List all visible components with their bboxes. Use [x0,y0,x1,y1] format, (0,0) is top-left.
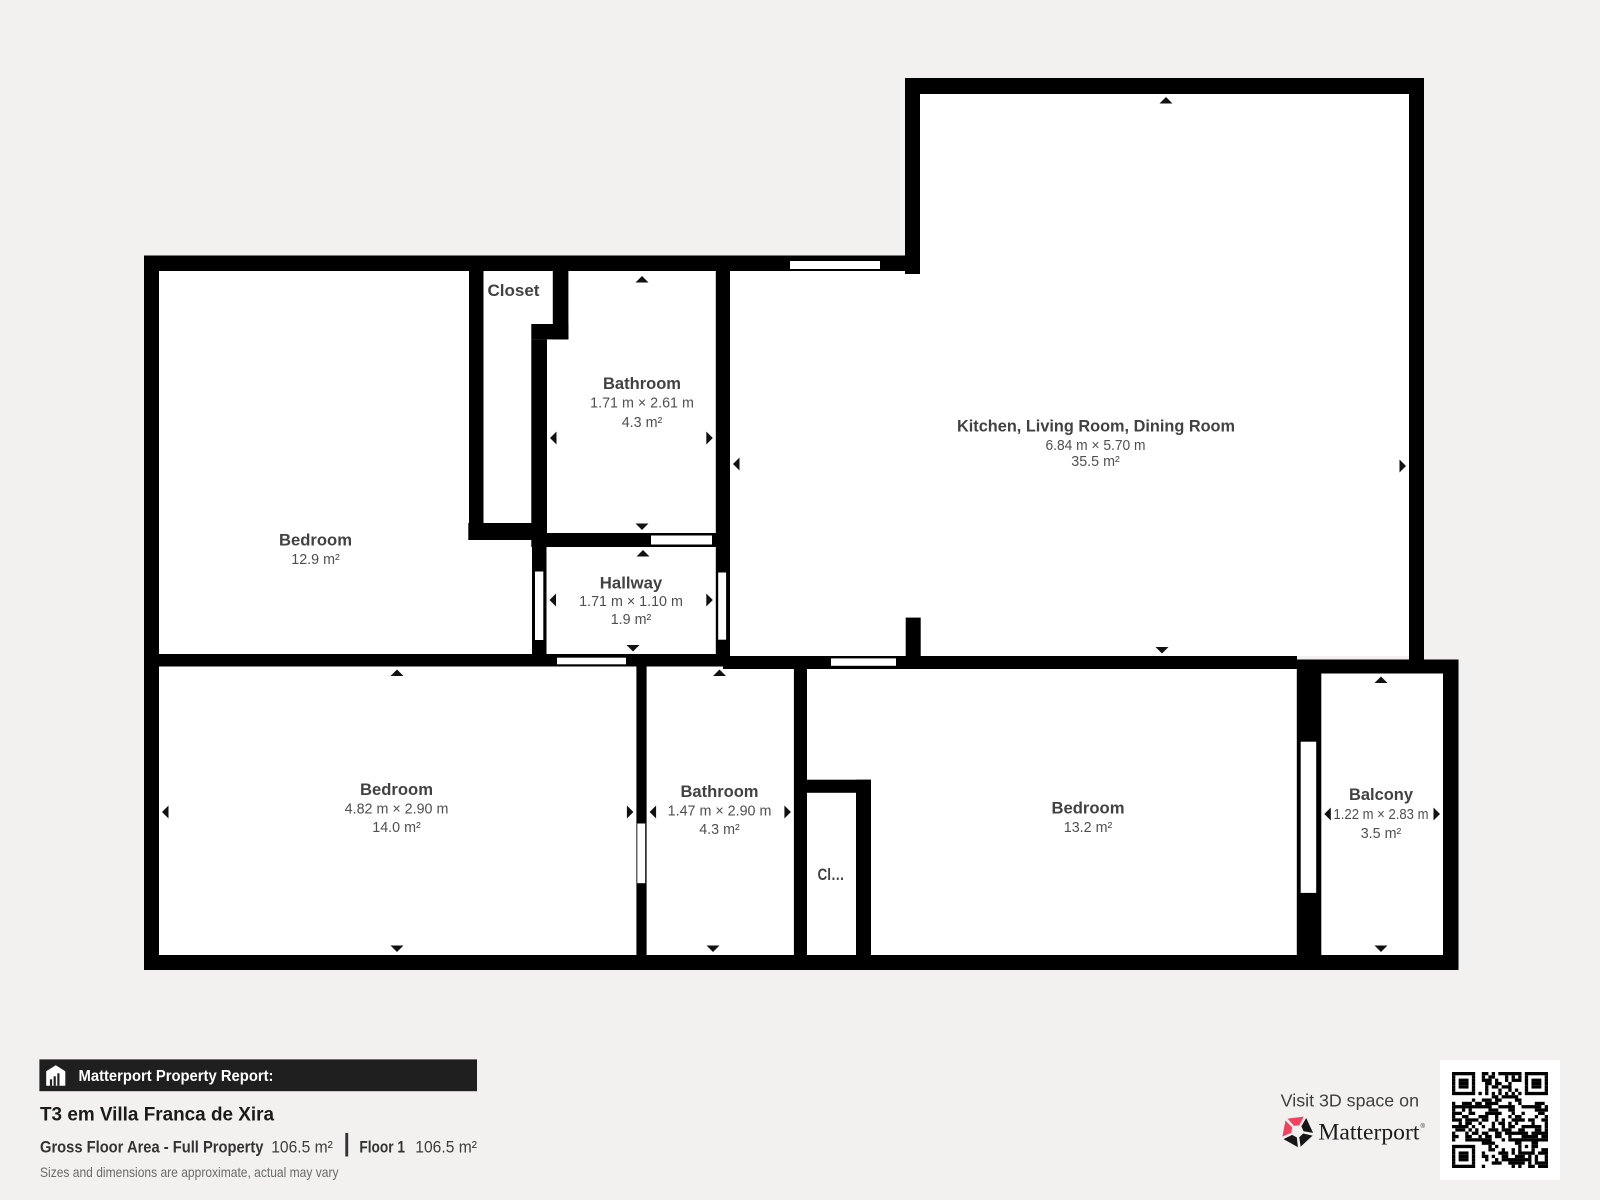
svg-text:Matterport Property Report:: Matterport Property Report: [79,1068,274,1085]
svg-text:Kitchen, Living Room, Dining R: Kitchen, Living Room, Dining Room [957,417,1235,436]
svg-text:Bedroom: Bedroom [279,531,352,550]
svg-text:4.82 m × 2.90 m: 4.82 m × 2.90 m [345,802,449,818]
svg-text:4.3 m²: 4.3 m² [622,415,663,431]
svg-text:Matterport: Matterport [1318,1120,1419,1146]
svg-text:106.5 m²: 106.5 m² [271,1138,333,1157]
svg-text:Cl…: Cl… [818,865,845,884]
svg-text:Floor 1: Floor 1 [359,1138,405,1157]
svg-text:13.2 m²: 13.2 m² [1064,820,1113,836]
svg-text:Bathroom: Bathroom [681,782,759,801]
svg-text:14.0 m²: 14.0 m² [372,820,421,836]
svg-text:T3 em Villa Franca de Xira: T3 em Villa Franca de Xira [40,1104,274,1126]
svg-text:4.3 m²: 4.3 m² [699,822,740,838]
svg-text:Balcony: Balcony [1349,785,1414,804]
svg-text:1.71 m × 1.10 m: 1.71 m × 1.10 m [579,594,683,610]
svg-text:Visit 3D space on: Visit 3D space on [1281,1090,1419,1110]
svg-text:1.22 m × 2.83 m: 1.22 m × 2.83 m [1334,807,1429,823]
svg-text:1.47 m × 2.90 m: 1.47 m × 2.90 m [668,804,772,820]
svg-text:Bedroom: Bedroom [360,780,433,799]
svg-text:Closet: Closet [488,281,540,300]
svg-text:3.5 m²: 3.5 m² [1361,826,1402,842]
svg-text:1.9 m²: 1.9 m² [611,612,652,628]
svg-text:Gross Floor Area - Full Proper: Gross Floor Area - Full Property [40,1138,264,1157]
svg-text:12.9 m²: 12.9 m² [291,552,340,568]
svg-text:®: ® [1421,1123,1426,1130]
svg-text:6.84 m × 5.70 m: 6.84 m × 5.70 m [1046,438,1146,454]
svg-text:Hallway: Hallway [600,573,663,592]
svg-text:1.71 m × 2.61 m: 1.71 m × 2.61 m [590,396,694,412]
svg-text:Sizes and dimensions are appro: Sizes and dimensions are approximate, ac… [40,1164,339,1180]
svg-text:Bathroom: Bathroom [603,374,681,393]
svg-text:106.5 m²: 106.5 m² [415,1138,477,1157]
svg-text:Bedroom: Bedroom [1052,798,1125,817]
svg-text:35.5 m²: 35.5 m² [1071,454,1120,470]
